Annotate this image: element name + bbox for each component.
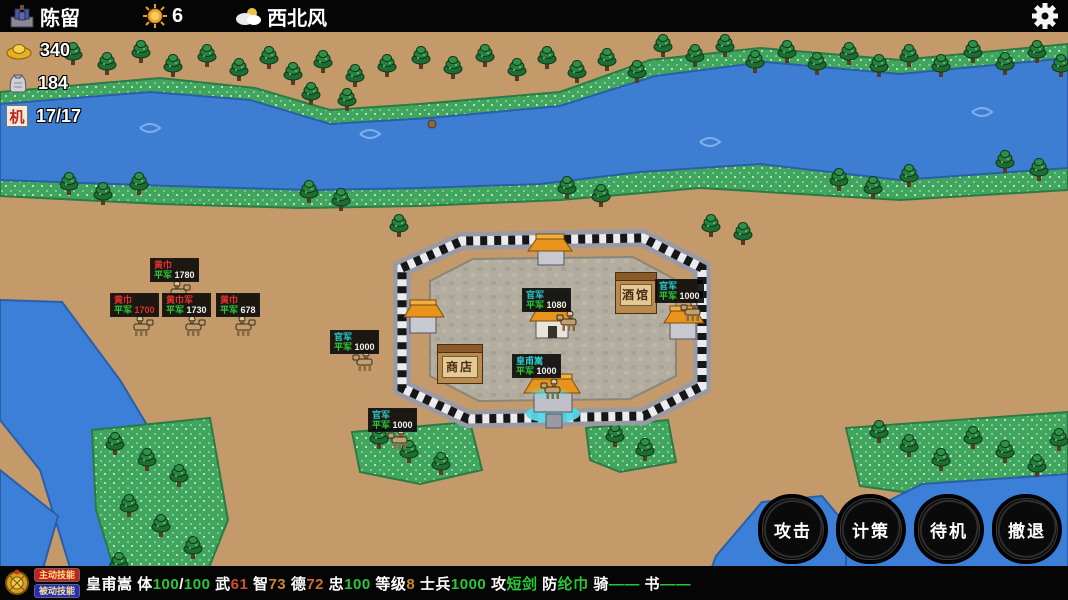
building-shop[interactable]: 商店 [437, 344, 483, 384]
unit-name: 黄巾军 [166, 295, 207, 305]
unit-label: 黄巾平军 1700 [110, 293, 159, 317]
unit-rank: 平军 [114, 305, 132, 315]
tactic-button[interactable]: 计策 [838, 496, 904, 562]
resource-panel: 340 184 机 17/17 [6, 38, 81, 137]
unit-label-row2: 平军 1000 [659, 291, 700, 301]
stat-segment: —— [609, 576, 640, 593]
game-screen: 商店 酒馆 黄巾平军 1780 黄巾平军 1700 黄巾军平军 1730 黄巾平… [0, 0, 1068, 600]
cavalry-sprite[interactable] [552, 310, 582, 337]
unit-label: 官军平军 1080 [522, 288, 571, 312]
unit-name: 官军 [334, 332, 375, 342]
stat-segment: 攻 [486, 576, 506, 593]
cavalry-sprite[interactable] [348, 350, 378, 377]
grass-south-b [586, 420, 676, 472]
stat-segment: 书 [640, 576, 660, 593]
unit-name: 黄巾 [114, 295, 155, 305]
passive-skill-badge[interactable]: 被动技能 [34, 584, 80, 598]
bottom-status-bar: 主动技能 被动技能 皇甫嵩 体100/100 武61 智73 德72 忠100 … [0, 566, 1068, 600]
unit-rank: 平军 [154, 270, 172, 280]
unit-rank: 平军 [220, 305, 238, 315]
unit-count: 1780 [172, 270, 195, 280]
sun-icon [142, 3, 168, 29]
stat-segment: 等级 [371, 576, 407, 593]
gold-ingot-icon [6, 40, 32, 60]
unit-count: 1700 [132, 305, 155, 315]
unit-count: 1000 [677, 291, 700, 301]
unit-label-row2: 平军 678 [220, 305, 256, 315]
building-tavern[interactable]: 酒馆 [615, 272, 657, 314]
stats-line: 皇甫嵩 体100/100 武61 智73 德72 忠100 等级8 士兵1000… [86, 573, 691, 594]
skill-badges: 主动技能 被动技能 [34, 568, 80, 598]
stat-segment: 武 [210, 576, 230, 593]
stat-segment: 72 [306, 576, 324, 593]
unit-rank: 平军 [516, 366, 534, 376]
unit-name: 黄巾 [154, 260, 195, 270]
unit-label-row2: 平军 1730 [166, 305, 207, 315]
stat-segment: 100 [344, 576, 371, 593]
stat-segment: 100 [153, 576, 180, 593]
food-resource: 184 [6, 71, 81, 95]
unit-label: 黄巾平军 678 [216, 293, 260, 317]
stat-segment: 德 [286, 576, 306, 593]
moves-resource: 机 17/17 [6, 104, 81, 128]
action-button-group: 攻击 计策 待机 撤退 [760, 496, 1060, 562]
unit-count: 1000 [390, 420, 413, 430]
unit-name: 官军 [372, 410, 413, 420]
cavalry-sprite[interactable] [383, 428, 413, 455]
general-crest-icon [4, 568, 30, 598]
unit-label-row2: 平军 1780 [154, 270, 195, 280]
stat-segment: 士兵 [415, 576, 451, 593]
day-count: 6 [172, 5, 183, 28]
unit-label: 官军平军 1000 [655, 279, 704, 303]
cavalry-sprite[interactable] [230, 315, 260, 342]
unit-rank: 平军 [526, 300, 544, 310]
unit-label: 黄巾军平军 1730 [162, 293, 211, 317]
tavern-roof [616, 273, 656, 281]
moves-value: 17/17 [36, 106, 81, 127]
unit-label-row2: 平军 1700 [114, 305, 155, 315]
stat-segment: 骑 [589, 576, 609, 593]
river-debris [428, 120, 436, 128]
gold-resource: 340 [6, 38, 81, 62]
unit-label: 官军平军 1000 [330, 330, 379, 354]
cavalry-sprite[interactable] [180, 315, 210, 342]
stat-segment: 8 [406, 576, 415, 593]
active-skill-badge[interactable]: 主动技能 [34, 568, 80, 582]
unit-label: 皇甫嵩平军 1000 [512, 354, 561, 378]
unit-rank: 平军 [659, 291, 677, 301]
unit-count: 1000 [534, 366, 557, 376]
stat-segment: 100 [184, 576, 211, 593]
cloud-icon [233, 4, 263, 28]
unit-label-row2: 平军 1080 [526, 300, 567, 310]
stat-segment: 短剑 [506, 576, 537, 593]
cavalry-sprite[interactable] [128, 315, 158, 342]
gold-value: 340 [40, 40, 70, 61]
attack-button[interactable]: 攻击 [760, 496, 826, 562]
stat-segment: 73 [268, 576, 286, 593]
unit-name: 官军 [659, 281, 700, 291]
unit-count: 1730 [184, 305, 207, 315]
unit-count: 1000 [352, 342, 375, 352]
unit-rank: 平军 [372, 420, 390, 430]
food-value: 184 [38, 73, 68, 94]
unit-label-row2: 平军 1000 [516, 366, 557, 376]
unit-count: 678 [238, 305, 256, 315]
stat-segment: —— [660, 576, 691, 593]
stat-segment: 防 [537, 576, 557, 593]
cavalry-sprite[interactable] [536, 378, 566, 405]
unit-label-row2: 平军 1000 [334, 342, 375, 352]
stat-segment: 纶巾 [558, 576, 589, 593]
stat-segment: 61 [231, 576, 249, 593]
tavern-sign: 酒馆 [620, 284, 653, 306]
shop-sign: 商店 [442, 356, 478, 378]
stat-segment: 智 [248, 576, 268, 593]
stat-segment: 忠 [324, 576, 344, 593]
stat-segment: 体 [137, 576, 153, 593]
wind-label: 西北风 [267, 2, 327, 31]
castle-icon [8, 3, 36, 29]
shop-roof [438, 345, 482, 353]
unit-name: 皇甫嵩 [516, 356, 557, 366]
unit-count: 1080 [544, 300, 567, 310]
unit-label: 黄巾平军 1780 [150, 258, 199, 282]
gear-icon[interactable] [1028, 1, 1062, 31]
ji-tile-icon: 机 [6, 105, 28, 127]
unit-rank: 平军 [334, 342, 352, 352]
cavalry-sprite[interactable] [676, 300, 706, 327]
unit-label-row2: 平军 1000 [372, 420, 413, 430]
unit-rank: 平军 [166, 305, 184, 315]
city-name: 陈留 [40, 2, 80, 31]
stat-segment: 1000 [451, 576, 486, 593]
unit-name: 官军 [526, 290, 567, 300]
rice-bag-icon [6, 71, 30, 95]
top-status-bar: 陈留 6 西北风 [0, 0, 1068, 32]
stat-segment: 皇甫嵩 [86, 576, 137, 593]
unit-name: 黄巾 [220, 295, 256, 305]
retreat-button[interactable]: 撤退 [994, 496, 1060, 562]
standby-button[interactable]: 待机 [916, 496, 982, 562]
unit-label: 官军平军 1000 [368, 408, 417, 432]
